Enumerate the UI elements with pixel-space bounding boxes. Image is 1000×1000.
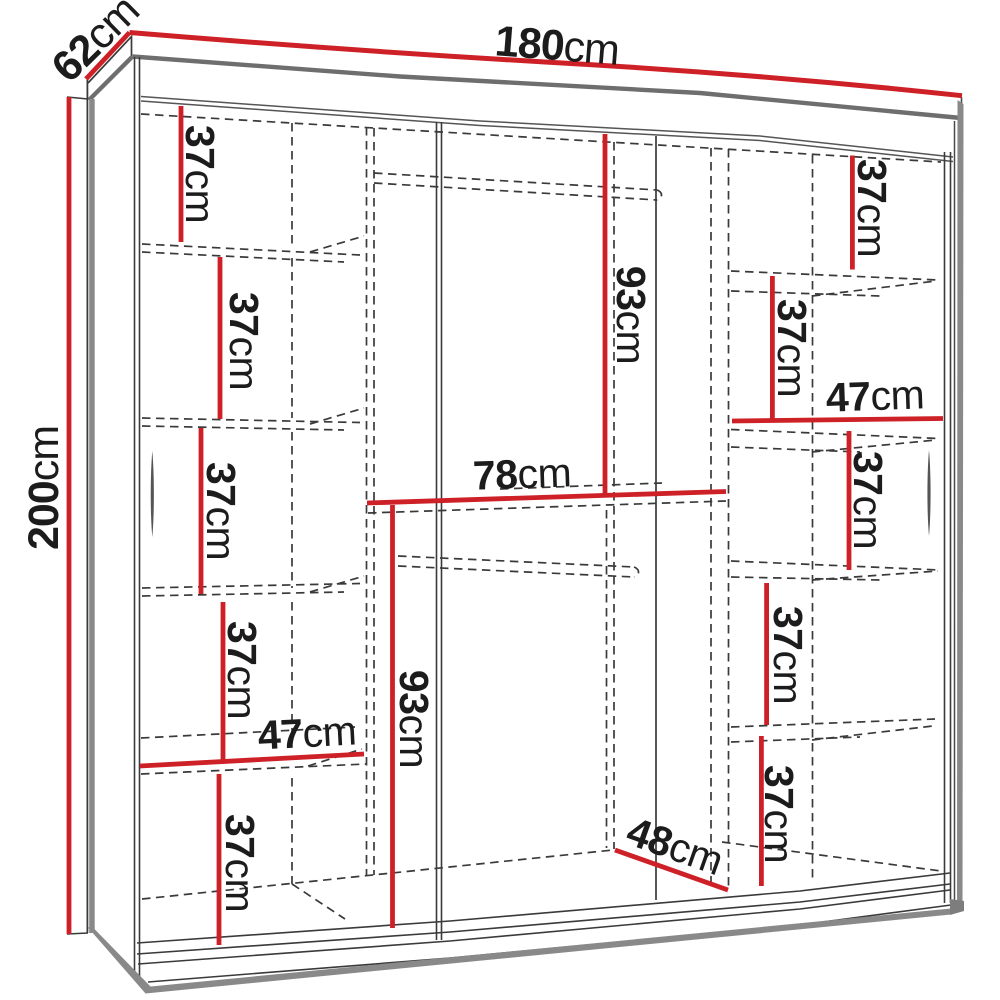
svg-text:180cm: 180cm [493, 17, 620, 75]
svg-text:200cm: 200cm [20, 426, 68, 550]
svg-text:37cm: 37cm [177, 125, 223, 223]
svg-text:37cm: 37cm [765, 606, 811, 704]
svg-text:47cm: 47cm [257, 707, 358, 758]
svg-text:47cm: 47cm [825, 371, 925, 420]
svg-text:37cm: 37cm [217, 814, 263, 912]
svg-text:37cm: 37cm [756, 765, 802, 863]
svg-text:37cm: 37cm [219, 621, 265, 719]
svg-text:93cm: 93cm [391, 670, 437, 768]
svg-text:37cm: 37cm [198, 462, 244, 560]
svg-text:93cm: 93cm [608, 266, 654, 364]
svg-text:37cm: 37cm [845, 451, 891, 549]
svg-text:78cm: 78cm [472, 449, 572, 498]
svg-text:37cm: 37cm [849, 159, 895, 257]
svg-text:37cm: 37cm [221, 292, 267, 390]
svg-text:37cm: 37cm [769, 299, 815, 397]
